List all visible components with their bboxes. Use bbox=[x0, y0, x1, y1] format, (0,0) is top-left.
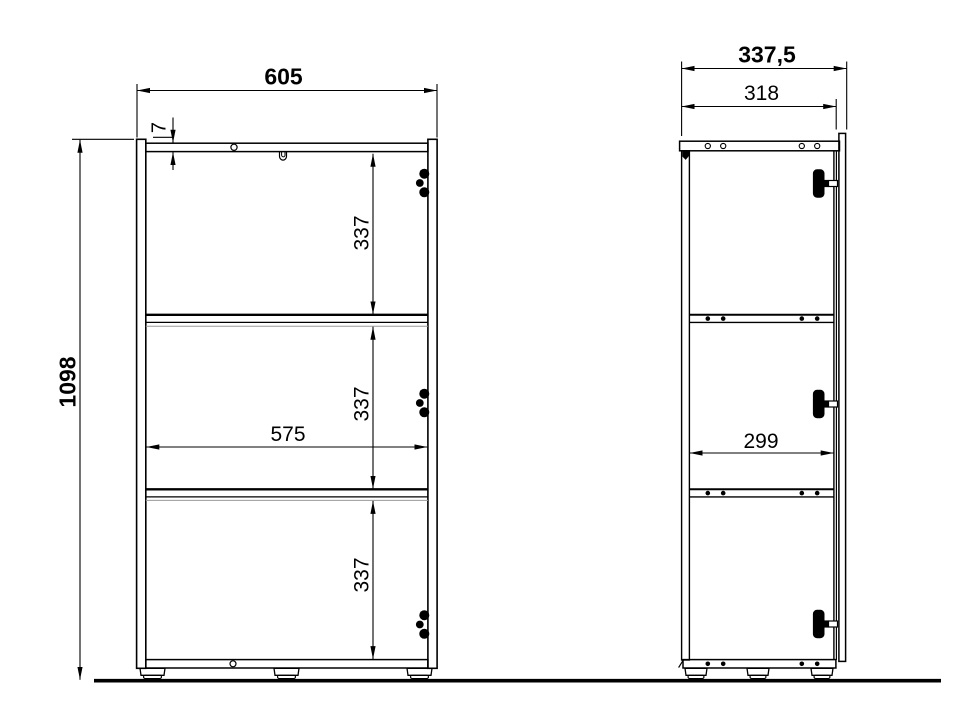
side-foot-left bbox=[685, 668, 707, 678]
front-shelf-1 bbox=[146, 315, 428, 326]
dim-label-body-depth: 318 bbox=[744, 82, 779, 105]
dim-label-compartment-height-2: 337 bbox=[351, 386, 374, 421]
dim-label-overall-width: 605 bbox=[264, 63, 303, 89]
side-foot-center bbox=[747, 668, 769, 678]
front-dimensions bbox=[72, 84, 437, 680]
side-back-panel bbox=[682, 151, 690, 660]
dim-label-compartment-height-1: 337 bbox=[351, 215, 374, 250]
side-shelf-2 bbox=[689, 489, 834, 497]
dim-label-top-thickness: 7 bbox=[149, 122, 171, 133]
front-shelf-2 bbox=[146, 489, 428, 500]
dim-label-compartment-height-3: 337 bbox=[351, 557, 374, 592]
front-top-panel bbox=[146, 143, 428, 151]
dim-label-overall-depth: 337,5 bbox=[738, 42, 796, 68]
side-top-panel bbox=[680, 141, 840, 151]
technical-drawing-page: 605 1098 7 337 337 337 575 337,5 318 299 bbox=[0, 0, 959, 719]
cam-hole-bottom bbox=[230, 661, 236, 667]
dim-overall-width bbox=[137, 84, 437, 138]
dim-label-inner-width: 575 bbox=[270, 423, 305, 446]
cam-hole-top bbox=[231, 144, 237, 150]
front-foot-left bbox=[140, 668, 165, 678]
keyhole-hanger-slot bbox=[282, 152, 285, 157]
bottom-panel-screws bbox=[706, 662, 820, 667]
back-panel-clip bbox=[682, 152, 689, 160]
technical-drawing-canvas: 605 1098 7 337 337 337 575 337,5 318 299 bbox=[0, 0, 959, 719]
side-top-panel-holes bbox=[705, 143, 820, 148]
side-shelf-1 bbox=[689, 315, 834, 323]
front-foot-center bbox=[274, 668, 299, 678]
front-right-side-panel bbox=[428, 139, 437, 668]
shelf-2-screws bbox=[706, 491, 820, 496]
shelf-1-screws bbox=[706, 316, 820, 321]
front-left-side-panel bbox=[137, 139, 146, 668]
dim-overall-height bbox=[72, 139, 134, 680]
front-foot-right bbox=[407, 668, 432, 678]
front-view bbox=[137, 139, 438, 678]
side-foot-right bbox=[811, 668, 833, 678]
side-view bbox=[679, 133, 846, 678]
front-bottom-panel bbox=[146, 660, 428, 668]
dim-label-inner-depth: 299 bbox=[743, 430, 778, 453]
door-panel bbox=[839, 133, 846, 661]
dim-label-overall-height: 1098 bbox=[55, 356, 81, 407]
